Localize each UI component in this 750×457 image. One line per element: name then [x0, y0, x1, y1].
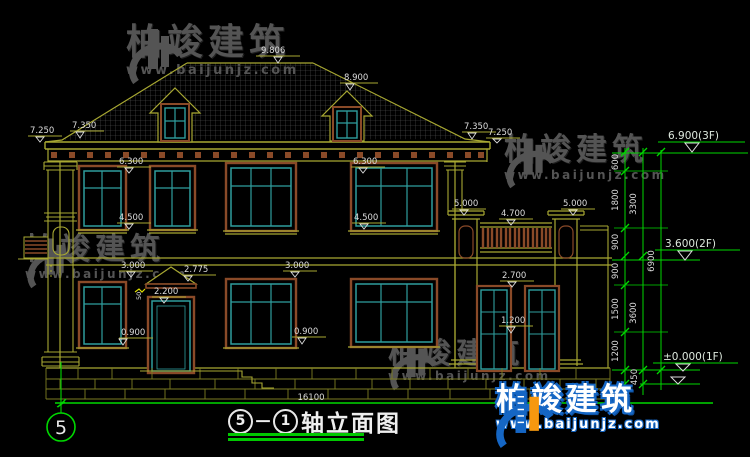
dim-label: 7.350	[72, 121, 96, 131]
window-1f-3	[348, 279, 440, 347]
gate-door-1	[477, 286, 511, 371]
title-underline-2	[228, 438, 364, 441]
dim-label: 4.500	[119, 213, 143, 223]
level-marks: 6.900(3F) 3.600(2F) ±0.000(1F)	[653, 130, 745, 384]
dim-label: 6.300	[119, 157, 143, 167]
louver-box	[18, 237, 48, 259]
dim-label: 5.000	[563, 199, 587, 209]
chain-dim: 6900	[647, 250, 657, 272]
level-2f: 3.600(2F)	[665, 238, 716, 250]
chain-dim: 900	[611, 234, 621, 250]
axis-bubble-end: 1	[273, 409, 298, 434]
chain-dim: 600	[611, 154, 621, 170]
stub-wall	[580, 226, 608, 368]
chain-dim: 1800	[611, 189, 621, 211]
roof-tiles	[62, 63, 465, 140]
brand-logo: 柏竣建筑 www.baijunjz.com	[492, 384, 661, 432]
brand-logo-icon	[492, 384, 556, 450]
cad-drawing-canvas: 柏竣建筑 www.baijunjz.com 柏竣建筑 www.baijunjz.…	[0, 0, 750, 457]
level-3f: 6.900(3F)	[668, 130, 719, 142]
dim-label: 5.000	[454, 199, 478, 209]
chain-dim: 3300	[629, 193, 639, 215]
dim-label: 1.200	[501, 316, 525, 326]
total-width-dim: 16100	[297, 393, 324, 403]
dim-label: 3.000	[121, 261, 145, 271]
title-underline-1	[228, 433, 364, 436]
roof	[45, 63, 490, 162]
entrance-door	[135, 267, 196, 373]
chain-dim: 3600	[629, 302, 639, 324]
chain-dim: 1500	[611, 298, 621, 320]
dim-label: 2.700	[502, 271, 526, 281]
dim-label: 50	[135, 292, 143, 300]
grid-bubble-label: 5	[55, 417, 67, 439]
dimension-chains: 600 1800 900 900 1500 1200 450 3300 3600…	[611, 148, 748, 403]
dim-ridge: 9.806	[256, 46, 300, 63]
dim-label: 8.900	[344, 73, 368, 83]
dim-label: 2.200	[154, 287, 178, 297]
window-2f-3	[223, 163, 299, 234]
window-1f-2	[223, 279, 299, 348]
axis-bubble-start: 5	[228, 409, 253, 434]
axis-separator: －	[254, 408, 272, 434]
dim-label: 3.000	[285, 261, 309, 271]
dim-label: 7.350	[464, 122, 488, 132]
window-2f-2	[147, 166, 198, 233]
dim-label: 9.806	[261, 46, 285, 56]
grid-bubble-5: 5	[47, 362, 75, 441]
dim-label: 2.775	[184, 265, 208, 275]
dim-floor2: 3.000 3.000	[119, 261, 317, 277]
dim-label: 7.250	[488, 128, 512, 138]
chain-dim: 900	[611, 263, 621, 279]
chain-dim: 1200	[611, 340, 621, 362]
balcony-railing	[480, 223, 552, 252]
dim-label: 4.500	[354, 213, 378, 223]
level-1f: ±0.000(1F)	[663, 351, 723, 363]
dim-label: 4.700	[501, 209, 525, 219]
dim-label: 7.250	[30, 126, 54, 136]
dim-label: 0.900	[294, 327, 318, 337]
dim-label: 6.300	[353, 157, 377, 167]
dim-label: 0.900	[121, 328, 145, 338]
gate-door-2	[525, 286, 559, 371]
